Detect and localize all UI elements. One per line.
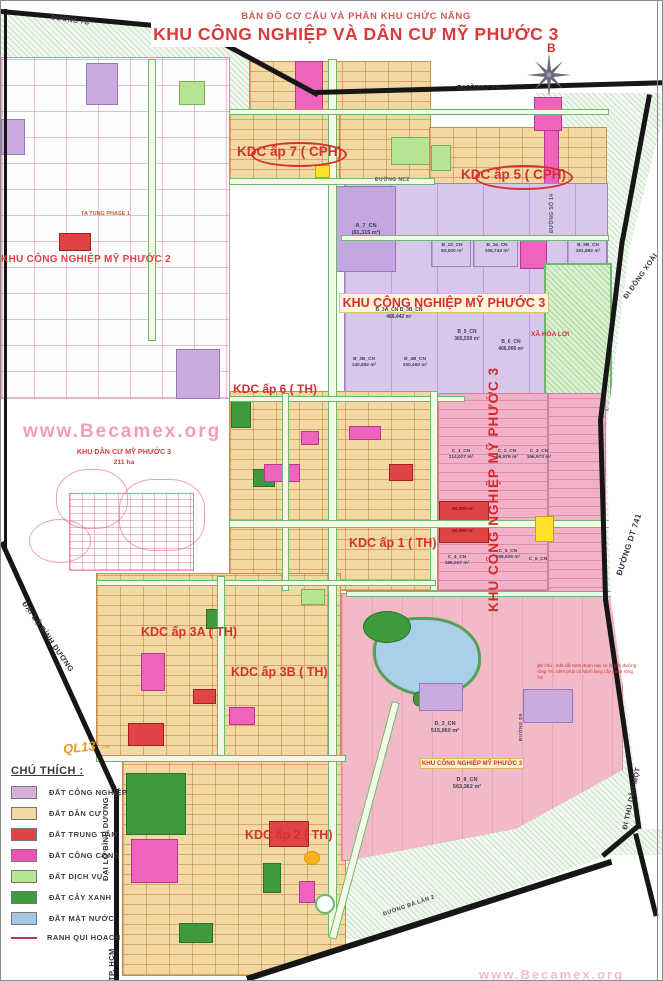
road-main-center bbox=[229, 520, 613, 528]
park-k-2 bbox=[263, 863, 281, 893]
watermark-becamex-main: www.Becamex.org bbox=[23, 421, 221, 443]
legend-swatch-dich-vu bbox=[11, 870, 37, 883]
ctr-3a-2 bbox=[128, 723, 164, 746]
marker-yellow-3 bbox=[304, 851, 320, 865]
legend-swatch-dan-cu bbox=[11, 807, 37, 820]
street-duong-d9: ĐƯỜNG D9 bbox=[518, 699, 523, 741]
map-page: BẢN ĐỒ CƠ CẤU VÀ PHÂN KHU CHỨC NĂNG KHU … bbox=[0, 0, 663, 981]
pub-3b-1 bbox=[229, 707, 255, 725]
parcel-label-50k-1: 50,000 m² bbox=[441, 507, 485, 513]
legend-label-trung-tam: ĐẤT TRUNG TÂM bbox=[49, 830, 118, 839]
annotation-oval-ap7 bbox=[251, 142, 347, 167]
ctr-ap1 bbox=[389, 464, 413, 481]
park-k-3 bbox=[179, 923, 213, 943]
parcel-label-50k-2: 50,000 m² bbox=[441, 529, 485, 535]
ctr-3a-1 bbox=[193, 689, 216, 704]
legend-item-mat-nuoc: ĐẤT MẶT NƯỚC bbox=[11, 912, 156, 925]
road-ap1-south bbox=[96, 580, 436, 586]
legend-label-ranh-qui-hoach: RANH QUI HOẠCH bbox=[47, 933, 121, 942]
map-title: KHU CÔNG NGHIỆP VÀ DÂN CƯ MỸ PHƯỚC 3 bbox=[151, 24, 561, 45]
parcel-label-c1: C_1_CN 214,027 m² bbox=[442, 449, 480, 461]
legend-item-dich-vu: ĐẤT DỊCH VỤ bbox=[11, 870, 156, 883]
label-ta-tung: TA TUNG PHASE 1 bbox=[81, 211, 130, 217]
parcel-mp2-c bbox=[176, 349, 220, 399]
parcel-kdc5-svc bbox=[431, 145, 451, 171]
legend-label-cay-xanh: ĐẤT CÂY XANH bbox=[49, 893, 112, 902]
parcel-label-b6: B_6_CN 406,906 m² bbox=[487, 339, 535, 352]
legend: CHÚ THÍCH : ĐẤT CÔNG NGHIỆP ĐẤT DÂN CƯ Đ… bbox=[11, 765, 156, 950]
label-my-phuoc-3-south: KHU CÔNG NGHIỆP MỸ PHƯỚC 3 bbox=[420, 758, 524, 769]
parcel-b10-row-pink bbox=[520, 239, 547, 269]
legend-item-cong-nghiep: ĐẤT CÔNG NGHIỆP bbox=[11, 786, 156, 799]
parcel-label-c3: C_3_CN 196,973 m² bbox=[522, 449, 556, 461]
parcel-label-b3b: B_3B_CN 140,892 m² bbox=[342, 357, 386, 369]
label-kdc-ap2: KDC ấp 2 ( TH) bbox=[245, 828, 333, 842]
road-left-edge bbox=[4, 9, 7, 547]
parcel-label-c6: C_6_CN bbox=[523, 557, 553, 563]
legend-label-cong-cong: ĐẤT CÔNG CỘNG bbox=[49, 851, 120, 860]
parcel-mp2-red bbox=[59, 233, 91, 251]
parcel-d-lav-1 bbox=[419, 683, 463, 711]
legend-item-cong-cong: ĐẤT CÔNG CỘNG bbox=[11, 849, 156, 862]
legend-swatch-cong-cong bbox=[11, 849, 37, 862]
legend-swatch-cay-xanh bbox=[11, 891, 37, 904]
watermark-becamex-bottom: www.Becamex.org bbox=[479, 967, 624, 981]
label-kdc-ap3a: KDC ấp 3A ( TH) bbox=[141, 625, 237, 639]
marker-yellow-1 bbox=[315, 165, 330, 178]
street-duong-7b-right: ĐƯỜNG 7B bbox=[457, 83, 501, 92]
pub-ap6-2 bbox=[349, 426, 381, 440]
kdc-211ha-outline-2 bbox=[119, 479, 205, 551]
legend-line-ranh-qui-hoach bbox=[11, 937, 37, 939]
label-kdc-ap3b: KDC ấp 3B ( TH) bbox=[231, 665, 328, 679]
roundabout bbox=[315, 894, 335, 914]
marker-yellow-2 bbox=[535, 516, 554, 542]
road-mp2-vertical bbox=[148, 59, 156, 341]
legend-item-cay-xanh: ĐẤT CÂY XANH bbox=[11, 891, 156, 904]
label-kdc-ap1: KDC ấp 1 ( TH) bbox=[349, 536, 437, 550]
map-title-block: BẢN ĐỒ CƠ CẤU VÀ PHÂN KHU CHỨC NĂNG KHU … bbox=[151, 9, 561, 47]
label-kdc-211ha-block: KHU DÂN CƯ MỸ PHƯỚC 3 211 ha bbox=[59, 447, 189, 466]
map-subtitle: BẢN ĐỒ CƠ CẤU VÀ PHÂN KHU CHỨC NĂNG bbox=[151, 11, 561, 22]
legend-label-mat-nuoc: ĐẤT MẶT NƯỚC bbox=[49, 914, 114, 923]
legend-swatch-trung-tam bbox=[11, 828, 37, 841]
parcel-mp2-a bbox=[86, 63, 118, 105]
kdc-211ha-outline-3 bbox=[29, 519, 91, 563]
legend-swatch-cong-nghiep bbox=[11, 786, 37, 799]
legend-item-dan-cu: ĐẤT DÂN CƯ bbox=[11, 807, 156, 820]
label-xa-hoa-loi: XÃ HÒA LỢI bbox=[531, 331, 569, 338]
legend-item-trung-tam: ĐẤT TRUNG TÂM bbox=[11, 828, 156, 841]
legend-title: CHÚ THÍCH : bbox=[11, 765, 156, 777]
pub-k-small bbox=[299, 881, 315, 903]
zone-my-phuoc-2 bbox=[1, 57, 230, 399]
legend-item-ranh-qui-hoach: RANH QUI HOẠCH bbox=[11, 933, 156, 942]
frame-right-line bbox=[657, 1, 658, 981]
legend-label-cong-nghiep: ĐẤT CÔNG NGHIỆP bbox=[49, 788, 127, 797]
parcel-label-a7: A_7_CN (81,315 m²) bbox=[337, 223, 395, 237]
parcel-label-d8: D_8_CN 563,362 m² bbox=[439, 777, 495, 791]
legend-label-dan-cu: ĐẤT DÂN CƯ bbox=[49, 809, 101, 818]
label-kdc-211ha-area: 211 ha bbox=[59, 459, 189, 466]
svc-3b-1 bbox=[301, 589, 325, 605]
road-main-vertical bbox=[328, 59, 337, 937]
parcel-label-d3: D_3_CN 515,060 m² bbox=[419, 721, 471, 735]
street-duong-so-14: ĐƯỜNG SỐ 14 bbox=[549, 181, 555, 233]
annotation-oval-ap5 bbox=[475, 165, 573, 190]
parcel-label-c4: C_4_CN 186,027 m² bbox=[439, 555, 475, 567]
parcel-label-b10: B_10_CN 83,000 m² bbox=[432, 243, 472, 255]
parcel-label-b9b: B_9B_CN 101,882 m² bbox=[567, 243, 609, 255]
pub-ap1-2 bbox=[301, 431, 319, 445]
parcel-label-b5: B_5_CN 365,559 m² bbox=[442, 329, 492, 342]
label-kdc-211ha-name: KHU DÂN CƯ MỸ PHƯỚC 3 bbox=[59, 447, 189, 456]
parcel-label-b3ab: B_3A_CN B_3B_CN 486,442 m² bbox=[361, 307, 437, 320]
road-ap6-west bbox=[282, 393, 289, 591]
parcel-label-c5: C_5_CN 196,925 m² bbox=[491, 549, 525, 561]
road-top-horizontal bbox=[229, 109, 609, 115]
annotation-note: ghi chú : mặt cắt ranh đoạn này có lộ gi… bbox=[537, 663, 639, 682]
road-k-top bbox=[96, 755, 346, 762]
parcel-d-lav-2 bbox=[523, 689, 573, 723]
label-my-phuoc-2: KHU CÔNG NGHIỆP MỸ PHƯỚC 2 bbox=[1, 254, 171, 265]
street-duong-nc2: ĐƯỜNG NC2 bbox=[375, 177, 410, 183]
park-lake-1 bbox=[363, 611, 411, 643]
parcel-label-b16: B_16_CN 105,743 m² bbox=[475, 243, 519, 255]
parcel-mp2-svc bbox=[179, 81, 205, 105]
parcel-label-b4b: B_4B_CN 150,460 m² bbox=[392, 357, 438, 369]
legend-swatch-mat-nuoc bbox=[11, 912, 37, 925]
pub-3a-1 bbox=[141, 653, 165, 691]
legend-label-dich-vu: ĐẤT DỊCH VỤ bbox=[49, 872, 103, 881]
parcel-label-c2: C_2_CN 96,576 m² bbox=[491, 449, 523, 461]
park-ap6-1 bbox=[231, 401, 251, 428]
label-kdc-ap6: KDC ấp 6 ( TH) bbox=[233, 382, 317, 396]
road-3b-west bbox=[217, 576, 225, 758]
road-c-west bbox=[430, 391, 438, 591]
parcel-f-green bbox=[391, 137, 431, 165]
label-my-phuoc-3-vertical: KHU CÔNG NGHIỆP MỸ PHƯỚC 3 bbox=[486, 367, 501, 612]
compass-star-icon bbox=[527, 53, 571, 97]
street-dai-lo-binh-duong-upper: ĐẠI LỘ BÌNH DƯƠNG bbox=[19, 597, 78, 676]
